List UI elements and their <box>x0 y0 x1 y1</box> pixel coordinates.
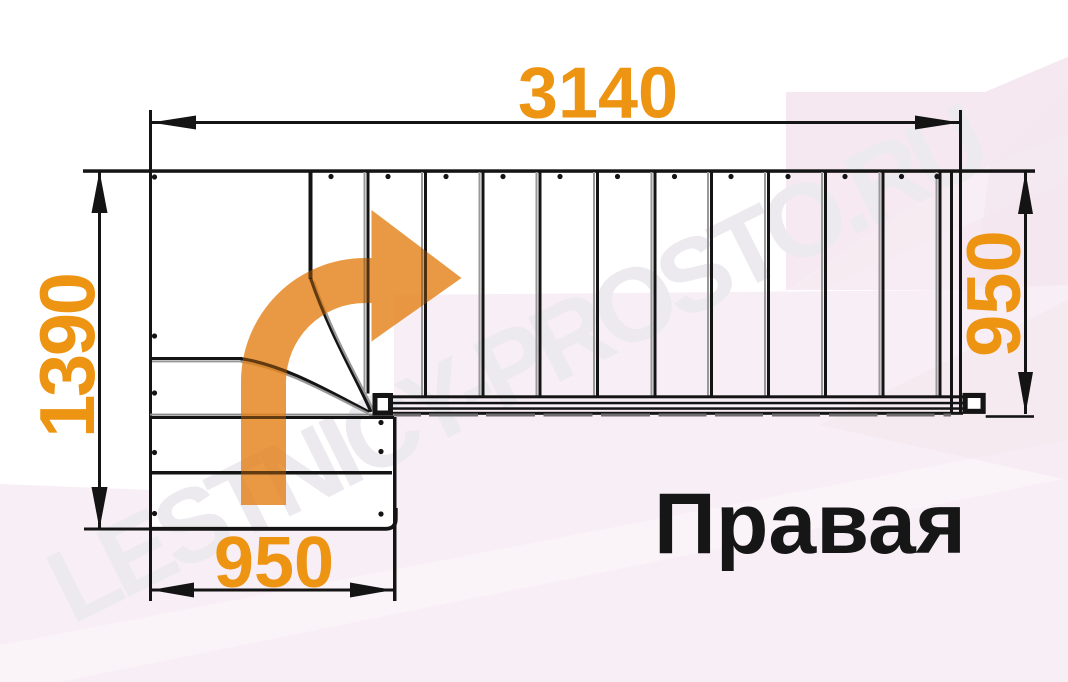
svg-text:3140: 3140 <box>518 54 678 134</box>
svg-text:1390: 1390 <box>23 274 111 438</box>
svg-text:Правая: Правая <box>654 476 966 572</box>
svg-text:950: 950 <box>214 523 334 603</box>
svg-text:950: 950 <box>952 230 1037 357</box>
